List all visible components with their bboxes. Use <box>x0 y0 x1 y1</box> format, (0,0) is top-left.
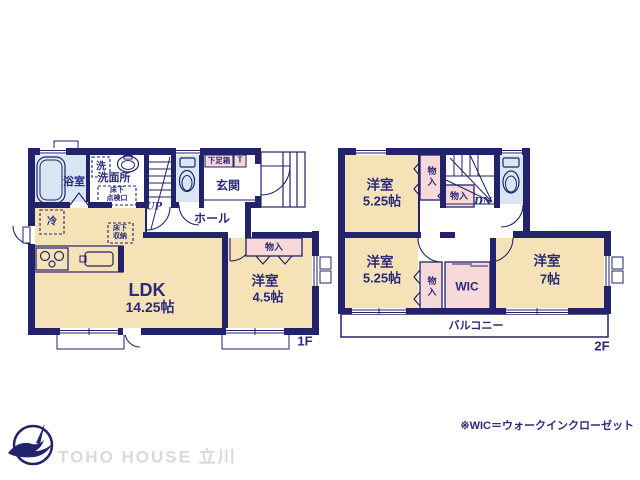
floor-label-2f: 2F <box>594 340 609 355</box>
room-label-bedroom-a-size: 5.25帖 <box>363 195 401 210</box>
room-label-hall: ホール <box>194 212 230 225</box>
room-label-ldk: LDK <box>129 280 166 300</box>
floorplan-canvas: 浴室 洗 洗面所 床下 点検口 UP 下足箱 T 玄関 ホール 冷 床下 収納 … <box>0 0 640 480</box>
room-label-bedroom-1f-size: 4.5帖 <box>252 291 283 306</box>
label-closet-b: 物入 <box>450 191 468 201</box>
room-label-bedroom-b-size: 5.25帖 <box>363 272 401 287</box>
label-underfloor-storage: 床下 収納 <box>113 225 127 241</box>
room-label-bedroom-b: 洋室 <box>367 254 394 269</box>
wic-footnote: ※WIC＝ウォークインクローゼット <box>460 417 634 433</box>
label-stairs-down: DN <box>474 196 492 207</box>
room-label-washroom: 洗面所 <box>98 172 131 184</box>
label-toilet-mark: T <box>238 157 243 166</box>
label-refrigerator: 冷 <box>47 216 57 227</box>
room-label-bedroom-c: 洋室 <box>534 253 561 268</box>
label-stairs-up: UP <box>146 201 162 212</box>
company-name: TOHO HOUSE 立川 <box>58 443 237 468</box>
label-shoe-box: 下足箱 <box>208 157 231 165</box>
room-label-entrance: 玄関 <box>216 179 240 192</box>
company-logo-bird-icon <box>8 423 53 464</box>
label-wic: WIC <box>455 280 478 293</box>
label-closet-a: 物入 <box>427 166 436 188</box>
label-balcony: バルコニー <box>449 320 504 332</box>
room-label-bathroom: 浴室 <box>63 176 85 188</box>
room-label-bedroom-c-size: 7帖 <box>540 273 560 288</box>
room-label-bedroom-a: 洋室 <box>367 177 394 192</box>
floor-label-1f: 1F <box>297 335 312 350</box>
room-label-bedroom-1f: 洋室 <box>252 273 279 288</box>
label-closet-1f: 物入 <box>265 242 283 252</box>
label-underfloor-hatch: 床下 点検口 <box>107 187 128 203</box>
floor-plan-drawing <box>0 0 640 480</box>
label-closet-c: 物入 <box>427 276 436 298</box>
room-label-ldk-size: 14.25帖 <box>125 300 174 316</box>
